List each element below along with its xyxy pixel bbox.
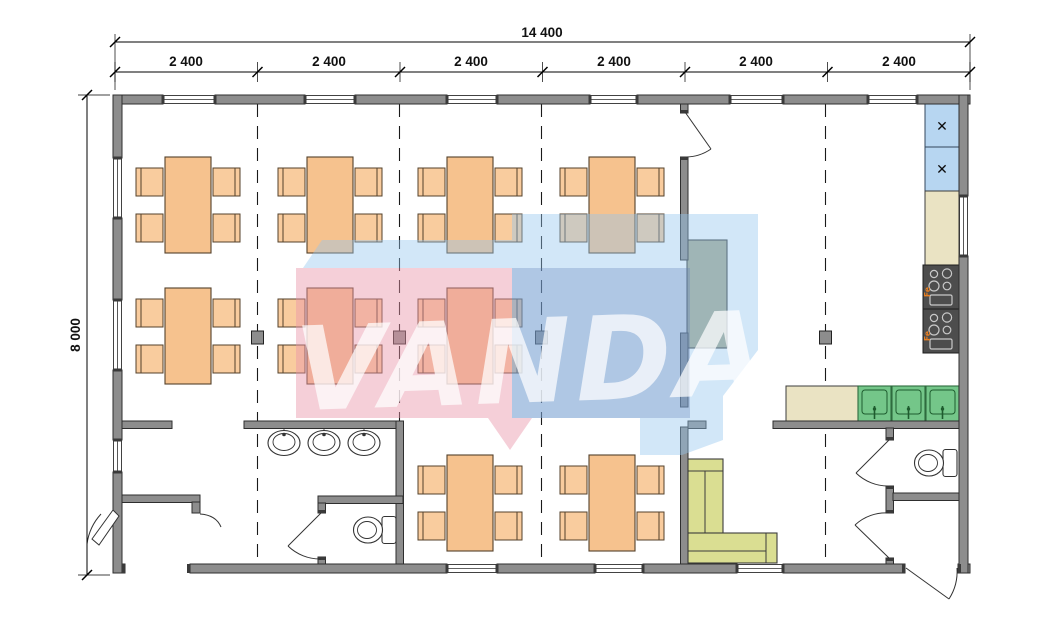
dining-set: [560, 455, 664, 551]
dim-module-label: 2 400: [169, 54, 203, 69]
window: [113, 157, 122, 220]
window: [729, 95, 785, 104]
dim-module-label: 2 400: [454, 54, 488, 69]
door-swing: [685, 112, 711, 157]
window: [867, 95, 919, 104]
dim-module-label: 2 400: [597, 54, 631, 69]
dining-set: [136, 288, 240, 384]
corner-sofa: [687, 459, 777, 563]
toilet: [915, 450, 958, 477]
window: [446, 95, 499, 104]
stove: Fe: [923, 309, 960, 353]
dim-height-label: 8 000: [68, 318, 83, 352]
door-swing: [856, 440, 889, 486]
door-swing: [855, 513, 889, 558]
blueprint-svg: ✕ ✕ Fe Fe: [0, 0, 1047, 629]
dining-set: [136, 157, 240, 253]
sink-counter: [786, 386, 858, 421]
window: [959, 195, 968, 258]
floor-plan-canvas: ✕ ✕ Fe Fe: [0, 0, 1047, 629]
kitchen-counter: [925, 191, 959, 265]
dining-set: [418, 157, 522, 253]
window: [113, 439, 122, 474]
stove-label: Fe: [923, 287, 932, 297]
toilet: [354, 517, 397, 544]
dim-total-label: 14 400: [521, 25, 562, 40]
window: [589, 95, 639, 104]
dim-module-label: 2 400: [312, 54, 346, 69]
window: [446, 564, 499, 573]
window: [162, 95, 217, 104]
window: [594, 564, 645, 573]
dining-set: [418, 455, 522, 551]
watermark-top-face: [303, 240, 512, 268]
watermark-text: VANDA: [292, 287, 771, 438]
stove: Fe: [923, 265, 960, 309]
dim-module-label: 2 400: [739, 54, 773, 69]
door-swing: [87, 510, 221, 545]
fridge-fan-icon: ✕: [936, 162, 948, 178]
vanda-watermark: VANDA: [292, 214, 771, 455]
door-swing: [906, 568, 957, 599]
fridge-fan-icon: ✕: [936, 119, 948, 135]
stove-label: Fe: [923, 331, 932, 341]
window: [113, 299, 122, 372]
door-swing: [288, 513, 321, 559]
dim-module-label: 2 400: [882, 54, 916, 69]
washbasin: [268, 429, 300, 456]
window: [736, 564, 785, 573]
dining-set: [278, 157, 382, 253]
window: [304, 95, 357, 104]
